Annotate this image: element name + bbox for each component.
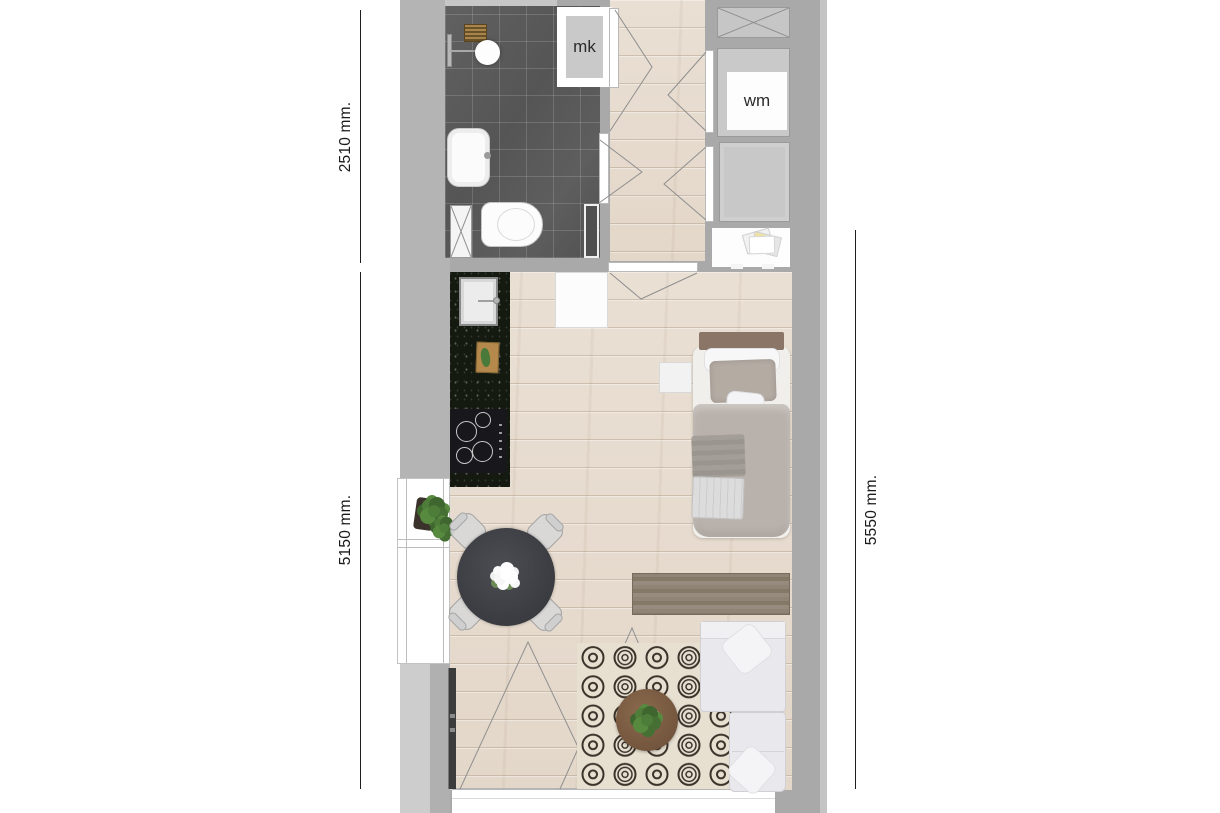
bed-blanket-folded: [691, 434, 745, 478]
toilet-seat: [497, 208, 535, 241]
tall-cabinet: [555, 272, 608, 328]
bathroom-faucet-icon: [484, 152, 491, 159]
dimension-label-bottom-left: 5150 mm.: [337, 485, 355, 575]
cooktop: [450, 409, 507, 473]
burner: [472, 441, 493, 462]
nightstand: [659, 362, 692, 393]
shaft-hatch-cross: [451, 206, 471, 257]
dimension-label-right: 5550 mm.: [863, 465, 881, 555]
radiator-segment: [450, 714, 455, 718]
shower-head-icon: [475, 40, 500, 65]
shaft-hatch: [450, 205, 472, 258]
dimension-line-right: [855, 230, 856, 789]
burner: [456, 421, 477, 442]
radiator: [448, 668, 456, 789]
bed-blanket-striped: [691, 476, 744, 520]
cooktop-controls: [499, 424, 502, 458]
radiator-segment: [450, 728, 455, 732]
dimension-line-bottom-left: [360, 272, 361, 789]
window-plant: [439, 523, 449, 533]
open-door-leaf: [584, 204, 599, 258]
sideboard: [632, 573, 790, 615]
window-plant: [428, 505, 440, 517]
cutting-board: [475, 342, 499, 374]
table-flowers: [500, 570, 510, 580]
burner: [475, 412, 491, 428]
kitchen-faucet-icon: [493, 297, 500, 304]
dimension-line-top-left: [360, 10, 361, 263]
vegetables: [479, 347, 491, 367]
dimension-label-top-left: 2510 mm.: [337, 92, 355, 182]
floorplan-canvas: wm mk: [0, 0, 1220, 813]
coffee-table-plant: [641, 714, 653, 726]
shower-drain: [464, 24, 487, 42]
burner: [456, 447, 473, 464]
bathroom-sink: [447, 128, 490, 187]
